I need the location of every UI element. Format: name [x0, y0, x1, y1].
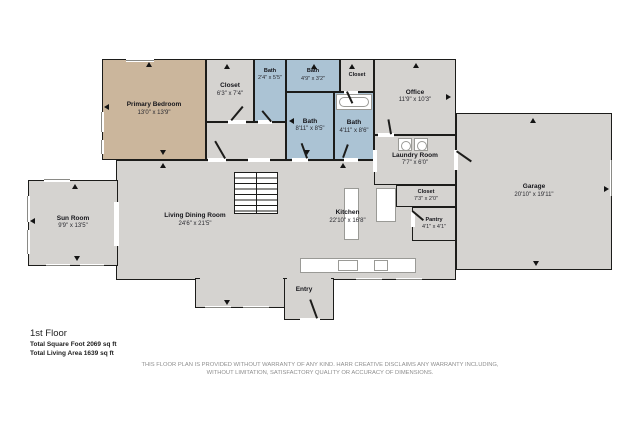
room-kitchen-dims: 22'10" x 16'8" [300, 218, 395, 226]
bathtub-basin [339, 97, 369, 107]
room-entry-label-group: Entry [282, 286, 326, 295]
wall-opening [200, 278, 283, 282]
room-closet-hall: Closet 7'3" x 2'0" [396, 185, 456, 207]
room-bath-top-label: Bath [307, 68, 319, 75]
wall-marker [72, 184, 78, 189]
total-living-area: Total Living Area 1639 sq ft [30, 350, 114, 357]
wall-marker [304, 150, 310, 155]
room-pantry: Pantry 4'1" x 4'1" [412, 207, 456, 241]
bathtub [336, 94, 372, 110]
stove [338, 260, 358, 271]
wall-marker [224, 300, 230, 305]
room-closet-top: Closet [340, 59, 374, 92]
window [100, 112, 104, 132]
room-pantry-dims: 4'1" x 4'1" [422, 224, 446, 231]
room-primary-bedroom-label: Primary Bedroom [127, 101, 182, 110]
total-square-foot: Total Square Foot 2069 sq ft [30, 341, 117, 348]
dryer [414, 138, 428, 151]
room-garage-label: Garage [523, 183, 545, 192]
room-pantry-label: Pantry [425, 217, 442, 224]
room-closet-bedroom-dims: 6'3" x 7'4" [217, 91, 243, 99]
room-kitchen-label-group: Kitchen 22'10" x 16'8" [300, 209, 395, 226]
floor-plan: Primary Bedroom 13'0" x 13'9" Closet 6'3… [0, 0, 640, 426]
room-bath-small-dims: 2'4" x 5'5" [258, 75, 282, 82]
door-opening [248, 158, 270, 162]
wall-marker [340, 163, 346, 168]
wall-marker [311, 64, 317, 69]
room-bath-main-label: Bath [303, 118, 317, 127]
room-closet-hall-label: Closet [418, 189, 435, 196]
wall-marker [160, 163, 166, 168]
window [80, 264, 104, 268]
room-bath-small: Bath 2'4" x 5'5" [254, 59, 286, 122]
room-laundry-label: Laundry Room [392, 152, 438, 161]
room-living-label-group: Living Dining Room 24'6" x 21'5" [120, 212, 270, 229]
wall-marker [413, 63, 419, 68]
room-office-dims: 11'9" x 10'3" [399, 97, 431, 105]
room-closet-bedroom: Closet 6'3" x 7'4" [206, 59, 254, 122]
wall-marker [224, 64, 230, 69]
window [46, 264, 70, 268]
sink [374, 260, 388, 271]
wall-marker [530, 118, 536, 123]
door-opening [373, 150, 377, 172]
room-kitchen-label: Kitchen [300, 209, 395, 218]
room-laundry-dims: 7'7" x 6'0" [402, 160, 428, 168]
wall-opening [287, 278, 331, 282]
room-garage-dims: 20'10" x 19'11" [514, 192, 553, 200]
stairs-divider [256, 173, 257, 213]
window [205, 306, 231, 310]
dryer-drum-icon [417, 141, 427, 151]
stairs [234, 172, 278, 214]
room-sun-room: Sun Room 9'9" x 13'5" [28, 180, 118, 266]
disclaimer-line-1: THIS FLOOR PLAN IS PROVIDED WITHOUT WARR… [0, 362, 640, 368]
wall-marker [146, 62, 152, 67]
window [243, 306, 269, 310]
window [356, 278, 382, 282]
room-bath-main-dims: 8'11" x 8'5" [295, 126, 324, 134]
room-closet-bedroom-label: Closet [220, 82, 240, 91]
door-opening [114, 202, 119, 246]
room-sun-room-label: Sun Room [57, 215, 90, 224]
room-closet-top-label: Closet [349, 72, 366, 79]
wall-marker [289, 118, 294, 124]
wall-marker [160, 150, 166, 155]
wall-marker [604, 186, 609, 192]
wall-marker [104, 104, 109, 110]
kitchen-counter-lower [300, 258, 416, 273]
room-primary-bedroom: Primary Bedroom 13'0" x 13'9" [102, 59, 206, 160]
window [396, 278, 422, 282]
wall-marker [30, 218, 35, 224]
window [44, 178, 70, 182]
window [26, 230, 30, 254]
door-opening [344, 158, 358, 162]
room-office: Office 11'9" x 10'3" [374, 59, 456, 135]
room-hall-bedroom-wing [206, 122, 286, 160]
room-living-label: Living Dining Room [120, 212, 270, 221]
room-sun-room-dims: 9'9" x 13'5" [58, 223, 88, 231]
washer-drum-icon [401, 141, 411, 151]
room-primary-bedroom-dims: 13'0" x 13'9" [138, 110, 171, 118]
room-entry-label: Entry [282, 286, 326, 295]
room-garage: Garage 20'10" x 19'11" [456, 113, 612, 270]
floor-title: 1st Floor [30, 328, 67, 339]
room-closet-hall-dims: 7'3" x 2'0" [414, 196, 438, 203]
wall-marker [533, 261, 539, 266]
window [610, 160, 614, 196]
room-bath-right-dims: 4'11" x 8'6" [339, 128, 368, 136]
room-bath-top-dims: 4'9" x 3'2" [301, 76, 325, 83]
wall-marker [349, 64, 355, 69]
room-office-label: Office [406, 89, 424, 98]
room-bath-small-label: Bath [264, 68, 276, 75]
washer [398, 138, 412, 151]
wall-marker [446, 94, 451, 100]
room-bath-main: Bath 8'11" x 8'5" [286, 92, 334, 160]
wall-marker [74, 256, 80, 261]
room-bath-right-label: Bath [347, 119, 361, 128]
disclaimer-line-2: WITHOUT LIMITATION, SATISFACTORY QUALITY… [0, 370, 640, 376]
window [100, 140, 104, 154]
room-living-dims: 24'6" x 21'5" [120, 221, 270, 229]
room-living-bottom [195, 278, 290, 308]
